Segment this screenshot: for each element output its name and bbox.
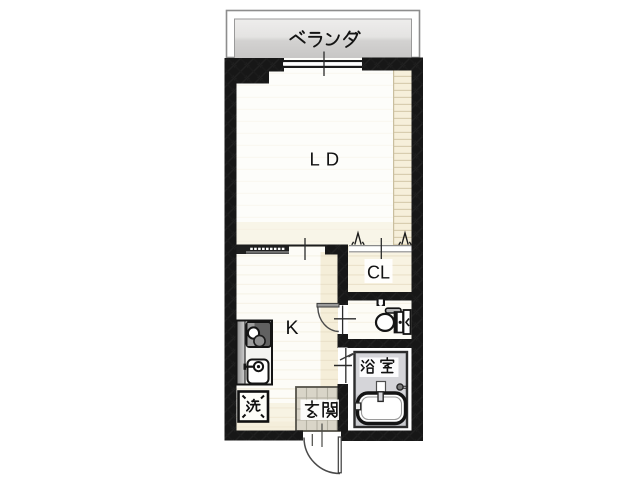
svg-text:CL: CL: [367, 263, 390, 283]
svg-text:LD: LD: [310, 149, 346, 170]
svg-text:K: K: [286, 317, 299, 339]
